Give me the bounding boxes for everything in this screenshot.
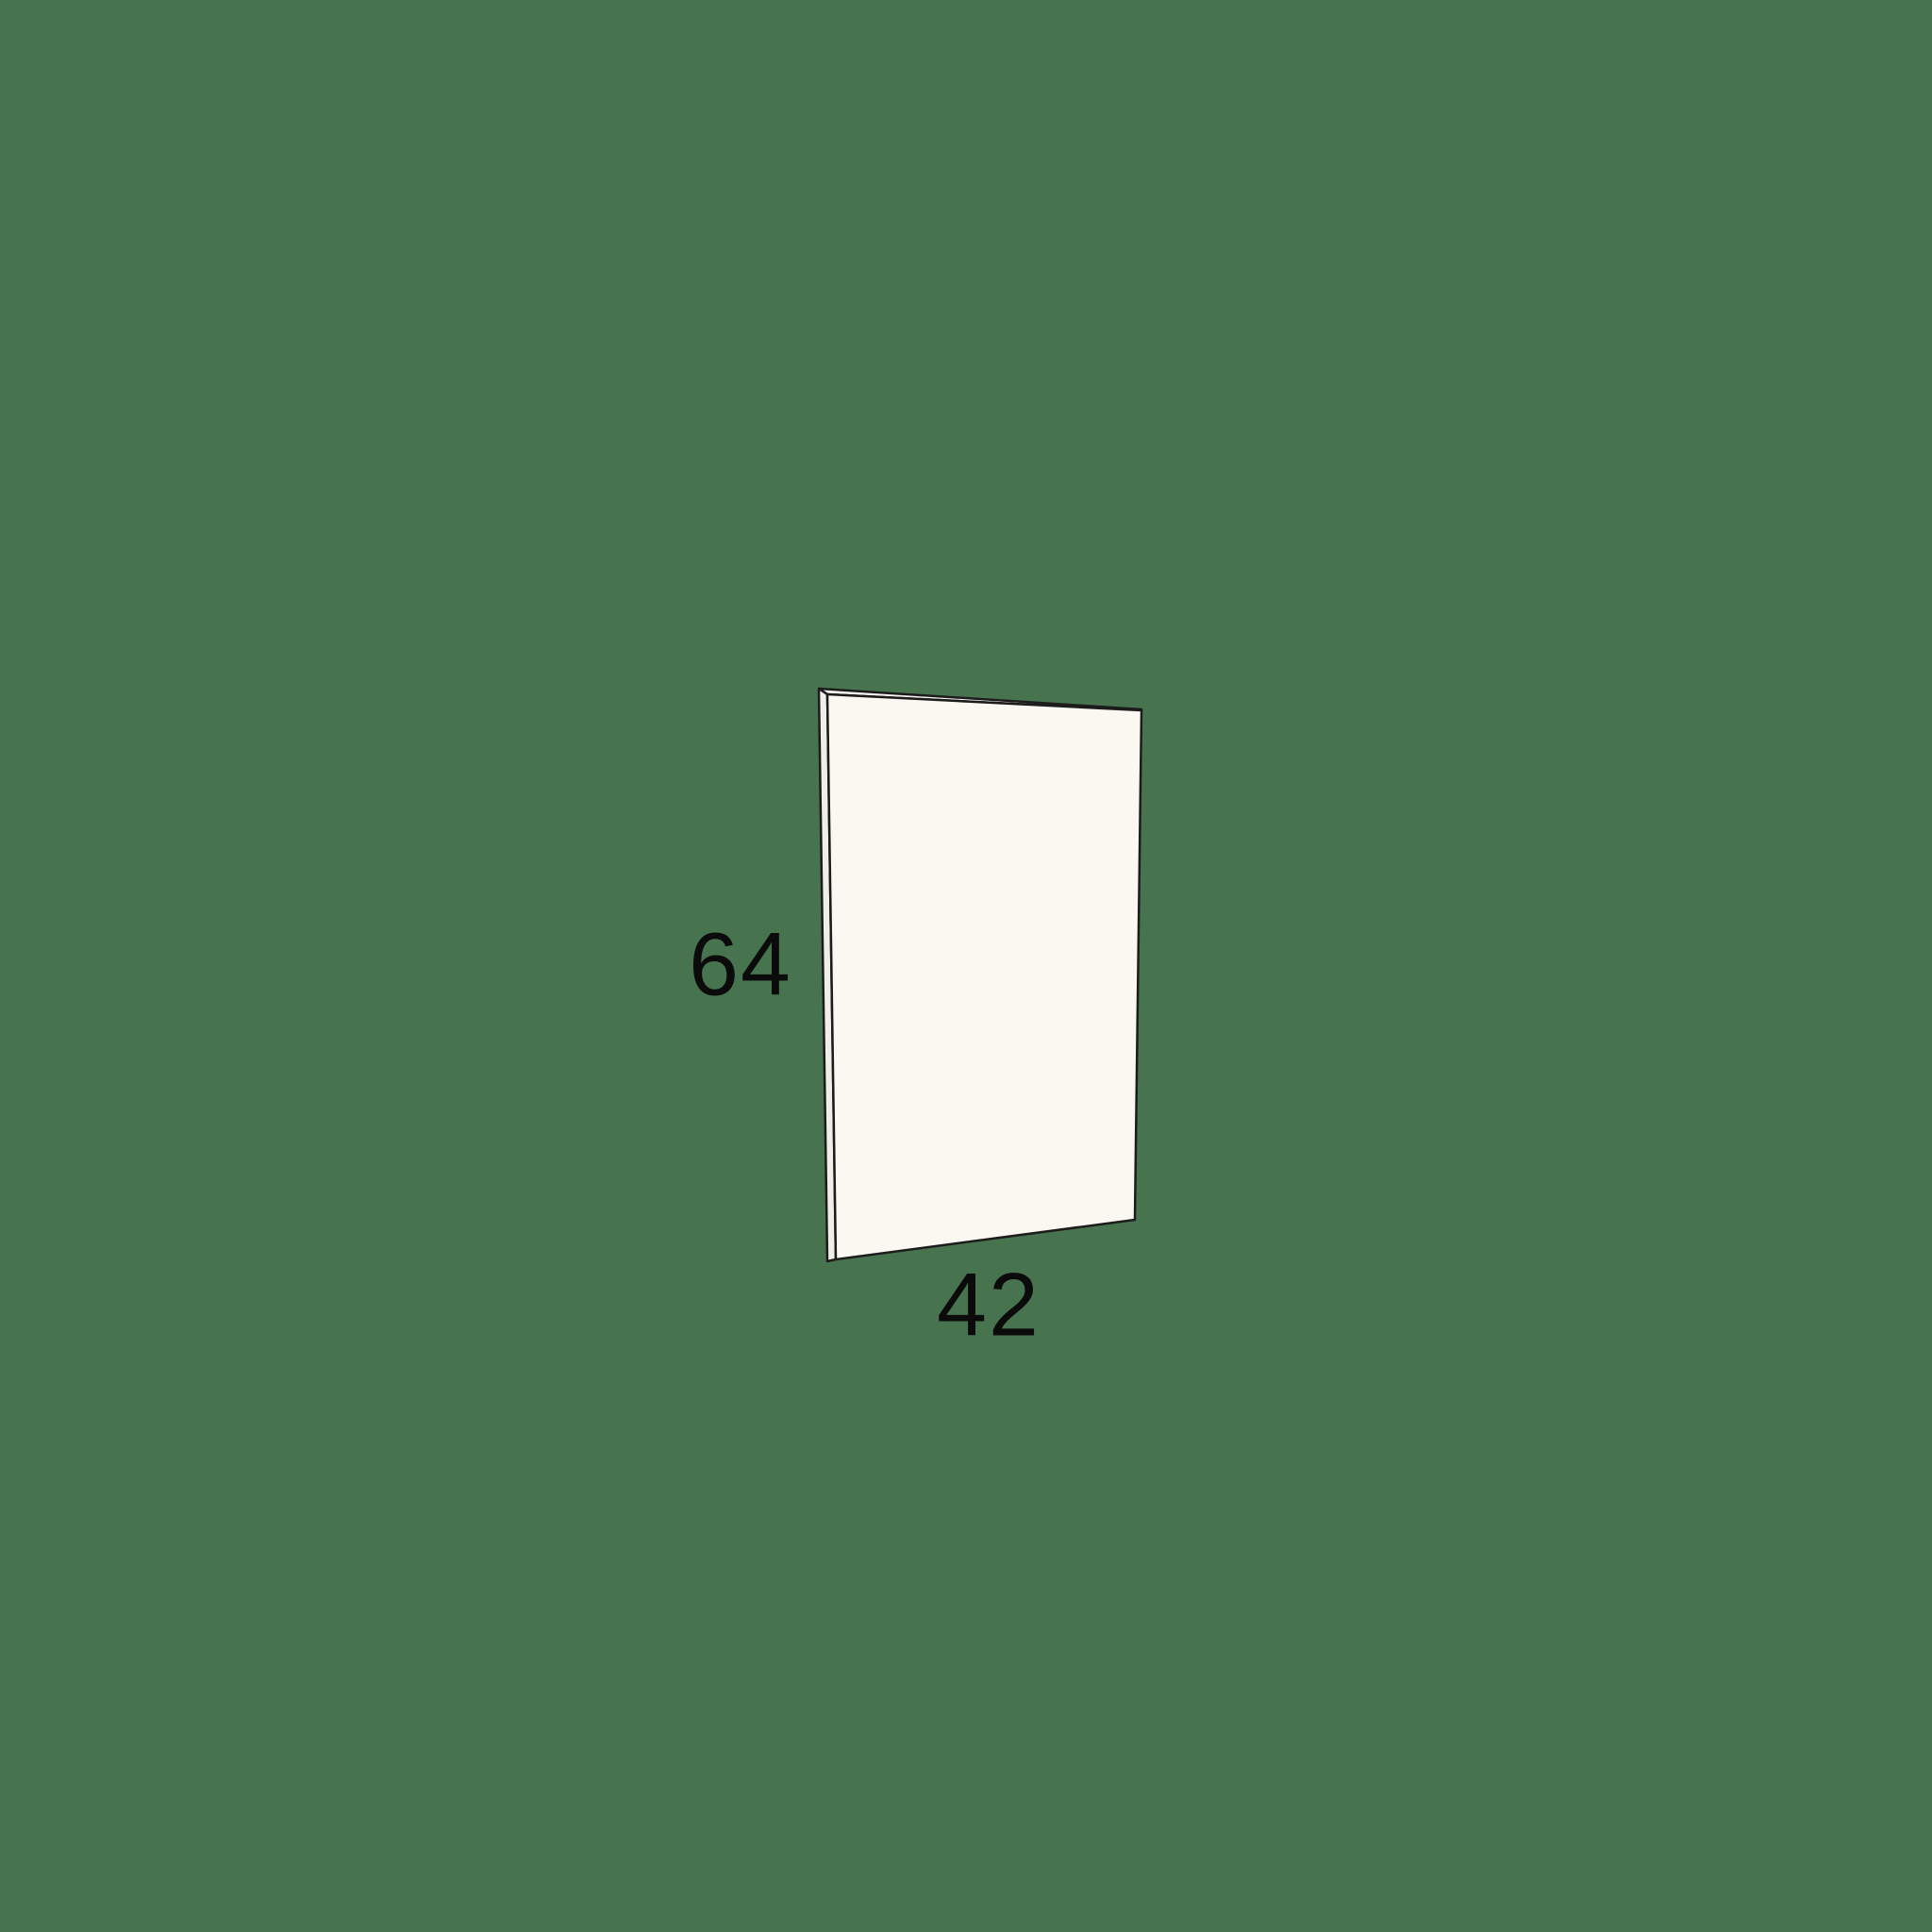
- height-dimension-label: 64: [689, 921, 792, 1010]
- drawing-canvas: 64 42: [0, 0, 1932, 1932]
- panel-front-face: [827, 694, 1141, 1259]
- width-dimension-label: 42: [937, 1261, 1041, 1351]
- panel-illustration: [0, 0, 1932, 1932]
